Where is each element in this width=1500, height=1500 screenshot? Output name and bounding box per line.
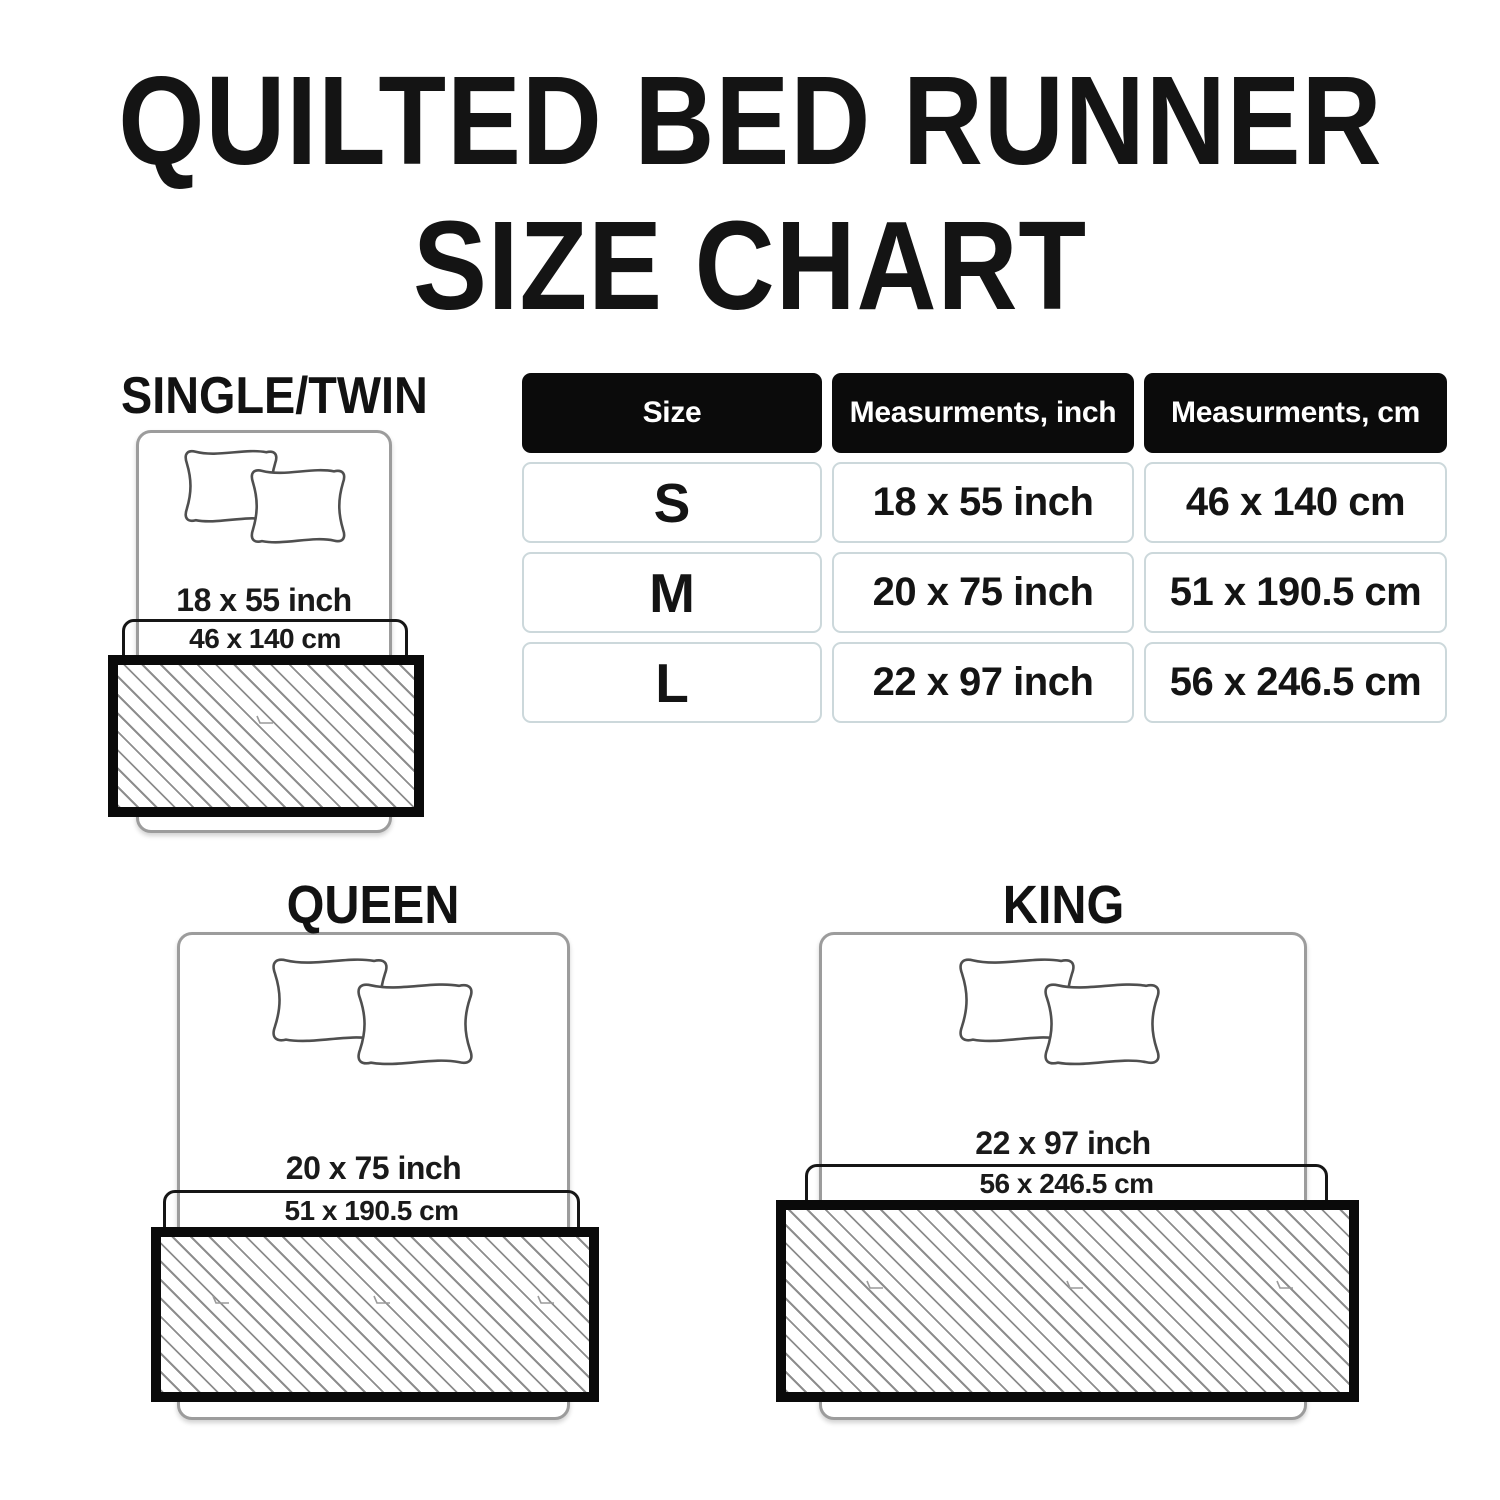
page-title-text-2: SIZE CHART [413, 191, 1087, 341]
table-cell-cm-m: 51 x 190.5 cm [1144, 552, 1447, 633]
page-title-line-1: QUILTED BED RUNNER [0, 46, 1500, 196]
diagram-single-twin-heading: SINGLE/TWIN [104, 368, 424, 424]
stitch-mark-icon [1276, 1280, 1294, 1290]
table-cell-cm-s: 46 x 140 cm [1144, 462, 1447, 543]
diagram-king-heading: KING [819, 876, 1307, 934]
runner-size-inch-label: 20 x 75 inch [177, 1150, 570, 1186]
table-header-inch: Measurments, inch [832, 373, 1134, 453]
table-cell-inch-m: 20 x 75 inch [832, 552, 1134, 633]
runner-size-inch-label: 22 x 97 inch [819, 1125, 1307, 1161]
pillow-icon [349, 981, 481, 1067]
stitch-mark-icon [866, 1280, 884, 1290]
quilted-hatch-pattern [786, 1210, 1349, 1392]
quilted-hatch-pattern [118, 665, 414, 807]
table-cell-size-m: M [522, 552, 822, 633]
size-chart-infographic: QUILTED BED RUNNER SIZE CHART SINGLE/TWI… [0, 0, 1500, 1500]
table-header-cm: Measurments, cm [1144, 373, 1447, 453]
stitch-mark-icon [1066, 1280, 1084, 1290]
bed-runner-swatch [776, 1200, 1359, 1402]
runner-size-cm-label: 56 x 246.5 cm [808, 1167, 1325, 1201]
diagram-queen-heading-text: QUEEN [287, 876, 460, 934]
bed-runner-swatch [151, 1227, 599, 1402]
table-cell-size-l: L [522, 642, 822, 723]
table-cell-inch-s: 18 x 55 inch [832, 462, 1134, 543]
diagram-king-heading-text: KING [1002, 876, 1124, 934]
table-header-size: Size [522, 373, 822, 453]
size-table: Size Measurments, inch Measurments, cm S… [522, 373, 1447, 723]
stitch-mark-icon [256, 715, 274, 725]
stitch-mark-icon [212, 1295, 230, 1305]
stitch-mark-icon [373, 1295, 391, 1305]
runner-size-cm-label: 51 x 190.5 cm [166, 1193, 577, 1228]
table-cell-size-s: S [522, 462, 822, 543]
table-cell-cm-l: 56 x 246.5 cm [1144, 642, 1447, 723]
quilted-hatch-pattern [161, 1237, 589, 1392]
pillow-icon [244, 467, 352, 545]
table-cell-inch-l: 22 x 97 inch [832, 642, 1134, 723]
stitch-mark-icon [537, 1295, 555, 1305]
bed-runner-swatch [108, 655, 424, 817]
page-title-line-2: SIZE CHART [0, 191, 1500, 341]
page-title-text-1: QUILTED BED RUNNER [118, 46, 1382, 196]
runner-size-cm-label: 46 x 140 cm [125, 622, 405, 656]
pillow-icon [1036, 981, 1168, 1067]
diagram-queen-heading: QUEEN [177, 876, 570, 934]
runner-size-inch-label: 18 x 55 inch [136, 582, 392, 618]
diagram-single-twin-heading-text: SINGLE/TWIN [121, 368, 428, 424]
